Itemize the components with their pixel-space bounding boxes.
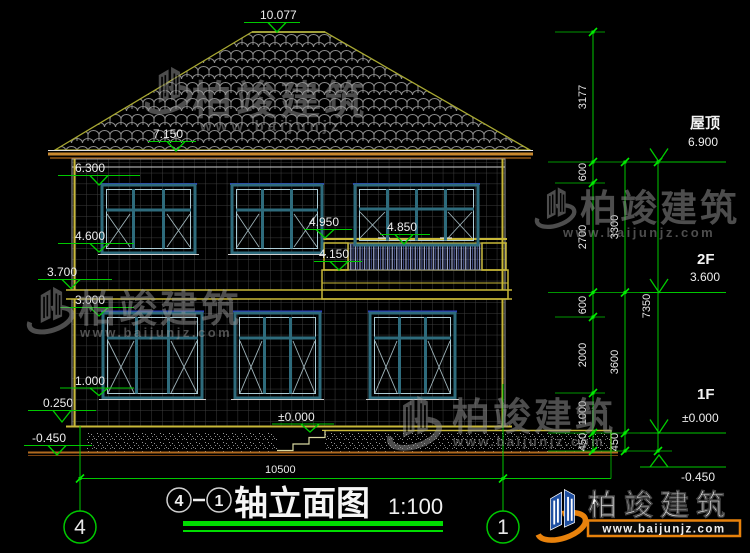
svg-text:4.600: 4.600 xyxy=(75,229,105,243)
svg-text:柏竣建筑: 柏竣建筑 xyxy=(192,79,368,123)
svg-text:3177: 3177 xyxy=(577,85,589,109)
title-scale: 1:100 xyxy=(388,494,443,519)
svg-text:±0.000: ±0.000 xyxy=(278,410,315,424)
svg-text:4: 4 xyxy=(175,493,184,510)
svg-text:7350: 7350 xyxy=(641,294,653,318)
title-underline-thin xyxy=(183,530,443,532)
svg-text:4: 4 xyxy=(74,516,86,539)
svg-text:3.600: 3.600 xyxy=(690,270,720,284)
svg-text:1: 1 xyxy=(497,516,509,539)
balcony xyxy=(322,238,508,299)
svg-text:4.950: 4.950 xyxy=(309,215,339,229)
svg-text:3.700: 3.700 xyxy=(47,265,77,279)
title-underline-thick xyxy=(183,521,443,526)
svg-text:10.077: 10.077 xyxy=(260,8,297,22)
watermark-center: 柏竣建筑 www.baijunjz.com xyxy=(386,396,616,454)
svg-text:2000: 2000 xyxy=(577,343,589,367)
svg-text:1.000: 1.000 xyxy=(75,374,105,388)
svg-text:3600: 3600 xyxy=(609,350,621,374)
svg-text:-0.450: -0.450 xyxy=(32,431,66,445)
svg-text:1F: 1F xyxy=(697,386,715,403)
title-text: 轴立面图 xyxy=(234,485,370,523)
svg-text:柏竣建筑: 柏竣建筑 xyxy=(580,187,740,229)
cad-elevation-drawing: 10.077 7.150 6.300 4.600 3.700 3.000 1.0… xyxy=(0,0,750,553)
svg-text:www.baijunjz: www.baijunjz xyxy=(199,118,342,135)
svg-text:www.baijunjz.com: www.baijunjz.com xyxy=(452,434,605,449)
svg-text:0.250: 0.250 xyxy=(43,396,73,410)
svg-text:4.850: 4.850 xyxy=(387,220,417,234)
svg-text:600: 600 xyxy=(577,163,589,181)
brand-logo-url: www.baijunjz.com xyxy=(601,524,725,536)
brand-logo: 柏竣建筑 www.baijunjz.com xyxy=(534,488,740,545)
svg-text:2F: 2F xyxy=(697,251,715,268)
watermark-right: 柏竣建筑 www.baijunjz.com xyxy=(534,187,740,240)
svg-text:www.baijunjz.com: www.baijunjz.com xyxy=(79,325,232,340)
svg-text:6.900: 6.900 xyxy=(688,135,718,149)
svg-text:-0.450: -0.450 xyxy=(681,470,715,484)
brand-logo-name: 柏竣建筑 xyxy=(588,488,732,522)
svg-text:6.300: 6.300 xyxy=(75,161,105,175)
svg-text:600: 600 xyxy=(577,296,589,314)
svg-text:4.150: 4.150 xyxy=(319,247,349,261)
svg-text:1: 1 xyxy=(215,493,224,510)
svg-text:柏竣建筑: 柏竣建筑 xyxy=(452,397,616,439)
svg-text:7.150: 7.150 xyxy=(153,127,183,141)
svg-text:10500: 10500 xyxy=(265,464,296,476)
svg-text:±0.000: ±0.000 xyxy=(682,411,719,425)
svg-text:www.baijunjz.com: www.baijunjz.com xyxy=(562,225,715,240)
svg-text:屋顶: 屋顶 xyxy=(690,115,720,132)
balcony-railing-bars xyxy=(348,244,482,270)
